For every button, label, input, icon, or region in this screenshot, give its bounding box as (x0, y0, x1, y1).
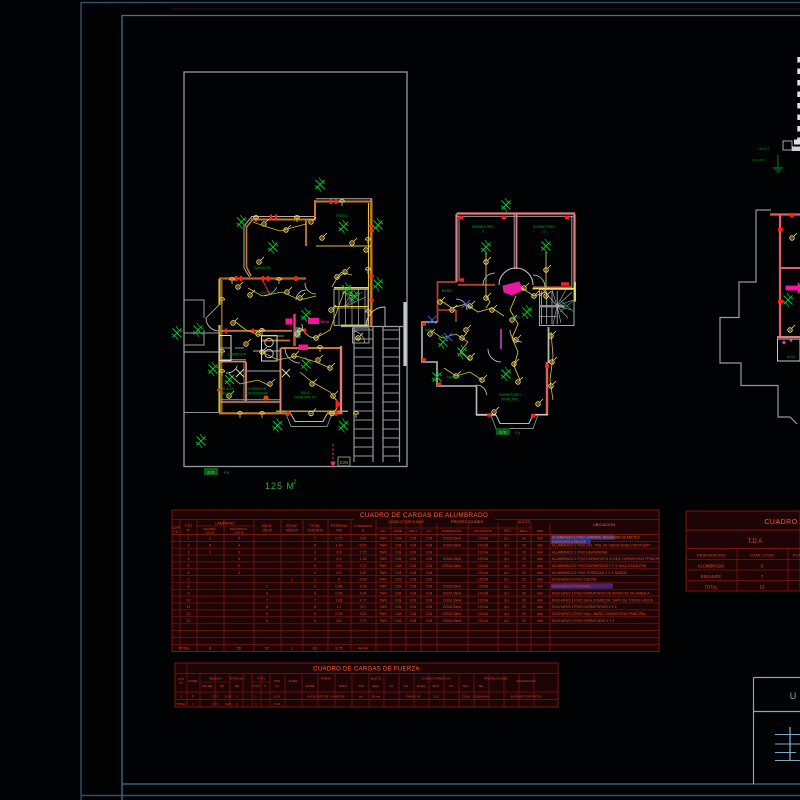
svg-text:2.08: 2.08 (426, 591, 432, 595)
svg-text:2.08: 2.08 (410, 564, 416, 568)
svg-text:DIF.: DIF. (479, 684, 484, 688)
svg-text:baño: baño (425, 328, 433, 332)
svg-text:5.0: 5.0 (361, 605, 366, 609)
svg-text:TWN: TWN (379, 543, 387, 547)
svg-text:1X10A: 1X10A (478, 598, 489, 602)
svg-text:2.08: 2.08 (395, 550, 401, 554)
svg-text:2.08: 2.08 (410, 557, 416, 561)
svg-text:1X10A: 1X10A (478, 550, 489, 554)
svg-text:SECC.: SECC. (519, 529, 528, 533)
svg-text:DIFERENCIAL: DIFERENCIAL (442, 529, 462, 533)
svg-text:LAMPARAS: LAMPARAS (215, 522, 235, 526)
svg-text:ENCHUFES 1 PISO SALA COMEDOR,: ENCHUFES 1 PISO SALA COMEDOR, SAPO DE TO… (552, 598, 654, 602)
svg-text:2.08: 2.08 (410, 543, 416, 547)
svg-text:TRAMO: TRAMO (321, 677, 332, 681)
svg-text:1X10A: 1X10A (478, 578, 489, 582)
svg-text:3: 3 (482, 230, 484, 234)
svg-text:5.18: 5.18 (225, 695, 231, 699)
svg-text:4.77: 4.77 (360, 598, 367, 602)
svg-text:tp.r: tp.r (505, 578, 511, 582)
svg-text:2X32A 30mA: 2X32A 30mA (443, 612, 462, 616)
svg-text:T A.: T A. (173, 530, 179, 534)
svg-text:m/m: m/m (537, 550, 544, 554)
svg-text:1X10A: 1X10A (478, 605, 489, 609)
svg-text:ASL: ASL (404, 684, 409, 688)
svg-text:2.08: 2.08 (426, 578, 432, 582)
svg-text:20: 20 (522, 571, 526, 575)
svg-text:1.06: 1.06 (336, 598, 343, 602)
svg-text:UBICACION: UBICACION (593, 522, 615, 527)
svg-text:2.04: 2.04 (360, 591, 367, 595)
svg-text:m/m: m/m (537, 612, 544, 616)
svg-text:P.A.: P.A. (515, 431, 521, 435)
svg-text:SALA DE: SALA DE (220, 387, 236, 391)
svg-text:ASL: ASL (380, 529, 386, 533)
svg-text:1.10: 1.10 (336, 543, 343, 547)
svg-text:NEUT.: NEUT. (432, 684, 440, 688)
svg-text:DESDE: DESDE (306, 684, 315, 688)
svg-text:m/m: m/m (537, 571, 544, 575)
svg-text:2.08: 2.08 (410, 550, 416, 554)
svg-text:DISYUNTOR: DISYUNTOR (474, 529, 492, 533)
svg-text:2.08: 2.08 (410, 605, 416, 609)
svg-text:DUCTO: DUCTO (518, 520, 531, 524)
svg-text:3: 3 (238, 550, 240, 554)
svg-text:2.08: 2.08 (410, 612, 416, 616)
svg-text:20: 20 (522, 537, 526, 541)
svg-text:3: 3 (314, 550, 316, 554)
svg-text:BAÑO: BAÑO (442, 288, 452, 293)
svg-text:3: 3 (238, 557, 240, 561)
svg-text:LAVADO: LAVADO (220, 392, 234, 396)
svg-text:3: 3 (314, 591, 316, 595)
svg-text:1X10A: 1X10A (478, 612, 489, 616)
svg-text:ESTAR: ESTAR (260, 290, 273, 295)
svg-text:5000 W: 5000 W (286, 529, 298, 533)
svg-text:2X32A 30mA: 2X32A 30mA (443, 543, 462, 547)
svg-text:2.08: 2.08 (395, 591, 401, 595)
svg-text:CANT. CTOS: CANT. CTOS (750, 553, 774, 558)
svg-text:4: 4 (238, 543, 240, 547)
svg-text:ENCHUFES 2 PISO DORMITORIOS 2: ENCHUFES 2 PISO DORMITORIOS 2 Y 3 (552, 605, 617, 609)
svg-text:tp.r: tp.r (505, 537, 511, 541)
svg-text:2X25A 30mA: 2X25A 30mA (473, 695, 488, 699)
svg-text:TWVN 2.08: TWVN 2.08 (406, 695, 421, 699)
svg-text:tp.r: tp.r (505, 543, 511, 547)
svg-text:2.08: 2.08 (395, 619, 401, 623)
svg-text:ENCHUFES 1 PISO COCINA: ENCHUFES 1 PISO COCINA (552, 578, 597, 582)
svg-text:ALUMBRADO 2 PISO TERRAZAS 2 Y: ALUMBRADO 2 PISO TERRAZAS 2 Y 3, BAÑOS (552, 570, 628, 575)
svg-text:ALUMBRADO: ALUMBRADO (698, 564, 725, 569)
svg-text:FASES: FASES (289, 679, 298, 683)
svg-text:ENCHUFES 2 PISO DORMITORIO 2 Y: ENCHUFES 2 PISO DORMITORIO 2 Y 3 (552, 619, 614, 623)
svg-text:2X32A 30mA: 2X32A 30mA (443, 585, 462, 589)
svg-text:8: 8 (266, 605, 268, 609)
svg-text:1X10A: 1X10A (478, 591, 489, 595)
svg-text:CONDUCTORES AWG: CONDUCTORES AWG (388, 520, 424, 524)
svg-text:TWN: TWN (379, 605, 387, 609)
svg-text:DUCTO: DUCTO (371, 677, 382, 681)
svg-text:2.73: 2.73 (360, 619, 367, 623)
svg-text:2X32A 30mA: 2X32A 30mA (443, 591, 462, 595)
svg-text:m/m: m/m (537, 529, 544, 533)
svg-text:m/m: m/m (537, 578, 544, 582)
svg-text:2.08: 2.08 (426, 543, 432, 547)
svg-text:2.08: 2.08 (395, 612, 401, 616)
svg-text:7: 7 (314, 598, 316, 602)
svg-text:KV: KV (275, 684, 279, 688)
svg-text:2.27: 2.27 (360, 564, 367, 568)
svg-text:13: 13 (760, 585, 765, 590)
svg-text:20: 20 (522, 543, 526, 547)
svg-text:BAÑO 2: BAÑO 2 (447, 375, 460, 380)
svg-text:20: 20 (522, 598, 526, 602)
svg-text:B+TH+TLRT. DE Y A MOTOR: B+TH+TLRT. DE Y A MOTOR (308, 695, 345, 699)
svg-text:5.02: 5.02 (360, 543, 367, 547)
svg-text:61: 61 (313, 647, 317, 651)
svg-text:DORMITORIO: DORMITORIO (499, 393, 521, 397)
svg-text:0.16: 0.16 (274, 702, 280, 706)
svg-text:2.08: 2.08 (395, 578, 401, 582)
svg-text:2.08: 2.08 (426, 571, 432, 575)
svg-text:20: 20 (522, 578, 526, 582)
svg-text:2.04: 2.04 (360, 585, 367, 589)
svg-text:FAMILIAR TV: FAMILIAR TV (294, 396, 317, 400)
svg-text:5: 5 (314, 564, 316, 568)
svg-text:1X10A: 1X10A (478, 537, 489, 541)
svg-text:13: 13 (187, 619, 191, 623)
svg-text:CTOS: CTOS (252, 684, 259, 688)
svg-text:SALIDA MOTOR PORTON: SALIDA MOTOR PORTON (510, 695, 541, 699)
svg-text:2.08: 2.08 (410, 598, 416, 602)
svg-text:T.D.A: T.D.A (748, 539, 763, 545)
svg-text:ENCHUFES 2 PISO HALL: ENCHUFES 2 PISO HALL (552, 585, 592, 589)
svg-text:I=I I-I I I=I: I=I I-I I I=I (752, 158, 765, 162)
svg-text:CUADRO: CUADRO (764, 519, 797, 526)
svg-text:tp.r: tp.r (505, 564, 511, 568)
svg-text:TENSION: TENSION (209, 677, 222, 681)
svg-text:tp.r: tp.r (505, 598, 511, 602)
svg-text:125 M: 125 M (265, 481, 295, 491)
svg-text:150 W: 150 W (262, 529, 273, 533)
svg-text:2: 2 (543, 230, 545, 234)
svg-text:3.41: 3.41 (360, 612, 367, 616)
svg-text:COMEDOR: COMEDOR (228, 353, 247, 357)
svg-text:m/m: m/m (537, 557, 544, 561)
svg-text:2X32A 30mA: 2X32A 30mA (443, 605, 462, 609)
svg-text:3.73: 3.73 (212, 702, 218, 706)
svg-text:KW: KW (336, 529, 342, 533)
svg-text:POR: POR (274, 679, 280, 683)
svg-text:220-380: 220-380 (202, 684, 213, 688)
svg-text:m/m: m/m (537, 591, 544, 595)
svg-text:2: 2 (188, 543, 190, 547)
svg-text:HALL: HALL (513, 315, 522, 319)
svg-text:CUADRO DE CARGAS DE FUERZA: CUADRO DE CARGAS DE FUERZA (313, 667, 419, 673)
svg-text:FASES: FASES (417, 684, 426, 688)
svg-text:DORMITORIO: DORMITORIO (472, 225, 494, 229)
svg-text:mm: mm (389, 685, 393, 688)
svg-text:BAJA: BAJA (321, 320, 330, 324)
svg-text:tp.r: tp.r (505, 619, 511, 623)
svg-text:TWN: TWN (379, 564, 387, 568)
svg-text:TWN: TWN (379, 591, 387, 595)
svg-text:100 W: 100 W (206, 531, 215, 535)
svg-text:2.08: 2.08 (395, 571, 401, 575)
svg-text:PROTECCIONES: PROTECCIONES (451, 519, 483, 524)
svg-text:3: 3 (314, 585, 316, 589)
svg-text:7: 7 (314, 537, 316, 541)
svg-text:20: 20 (522, 550, 526, 554)
svg-text:20: 20 (522, 612, 526, 616)
svg-text:m/m: m/m (537, 605, 544, 609)
svg-text:CENTROS: CENTROS (307, 529, 323, 533)
svg-text:T.A: T.A (427, 529, 431, 533)
svg-text:8: 8 (209, 647, 211, 651)
svg-text:ALUMBRADO 1 PISO SAL. PAS. DE: ALUMBRADO 1 PISO SAL. PAS. DE VERGLASSA,… (552, 543, 650, 547)
svg-text:2.08: 2.08 (395, 605, 401, 609)
svg-text:11: 11 (187, 605, 191, 609)
svg-text:PROTECCIONES: PROTECCIONES (484, 677, 507, 681)
svg-text:12: 12 (187, 612, 191, 616)
svg-text:2: 2 (266, 585, 268, 589)
svg-text:TWN: TWN (379, 619, 387, 623)
svg-text:10: 10 (187, 598, 191, 602)
svg-text:m/m: m/m (537, 564, 544, 568)
svg-text:0.9: 0.9 (337, 550, 342, 554)
svg-text:TWN: TWN (379, 571, 387, 575)
svg-text:2.08: 2.08 (410, 591, 416, 595)
svg-text:2X32A 30mA: 2X32A 30mA (443, 619, 462, 623)
svg-text:SECC.: SECC. (372, 684, 380, 688)
svg-text:1X10A: 1X10A (478, 543, 489, 547)
svg-text:TIPO: TIPO (503, 529, 511, 533)
svg-text:0.16: 0.16 (274, 695, 280, 699)
svg-text:2X16A: 2X16A (462, 695, 471, 699)
svg-text:4: 4 (314, 571, 316, 575)
svg-text:2.08: 2.08 (426, 605, 432, 609)
svg-text:m/m: m/m (537, 598, 544, 602)
svg-text:3: 3 (314, 557, 316, 561)
svg-text:20: 20 (522, 591, 526, 595)
svg-text:2.08: 2.08 (395, 537, 401, 541)
svg-text:POTENCIA: POTENCIA (331, 524, 348, 528)
svg-text:tp.r: tp.r (505, 557, 511, 561)
svg-text:1X10A: 1X10A (478, 619, 489, 623)
svg-text:2.08: 2.08 (426, 537, 432, 541)
svg-text:2.08: 2.08 (395, 564, 401, 568)
svg-text:7: 7 (188, 578, 190, 582)
svg-text:1: 1 (291, 647, 293, 651)
svg-text:1X10A: 1X10A (478, 571, 489, 575)
svg-text:2: 2 (209, 550, 211, 554)
svg-text:20: 20 (522, 557, 526, 561)
svg-text:N: N (264, 684, 266, 688)
svg-text:3.73: 3.73 (212, 695, 218, 699)
svg-text:2: 2 (294, 480, 297, 486)
svg-text:5.18: 5.18 (225, 702, 231, 706)
svg-text:tp.r: tp.r (505, 612, 511, 616)
svg-text:5: 5 (188, 564, 190, 568)
svg-text:TWN: TWN (379, 550, 387, 554)
svg-text:20: 20 (522, 585, 526, 589)
svg-text:1.36: 1.36 (360, 557, 367, 561)
svg-text:55 mm: 55 mm (372, 695, 381, 699)
svg-text:9.09: 9.09 (360, 578, 367, 582)
svg-text:2X32A 30mA: 2X32A 30mA (443, 564, 462, 568)
svg-text:2.08: 2.08 (426, 564, 432, 568)
svg-text:6: 6 (188, 571, 190, 575)
svg-text:I I=I I I I: I I=I I I I (758, 147, 769, 151)
svg-text:3.41: 3.41 (360, 537, 367, 541)
svg-text:E2N: E2N (340, 460, 348, 465)
svg-text:3: 3 (188, 550, 190, 554)
svg-text:0.48: 0.48 (336, 585, 343, 589)
svg-text:TIPO: TIPO (358, 684, 364, 688)
svg-text:1: 1 (180, 695, 182, 699)
svg-text:m/m: m/m (537, 543, 544, 547)
svg-text:ENCH.: ENCH. (262, 524, 273, 528)
svg-text:9.75: 9.75 (335, 647, 342, 651)
svg-text:100 W: 100 W (235, 531, 244, 535)
svg-text:PRINCIPAL: PRINCIPAL (501, 398, 519, 402)
svg-text:55: 55 (237, 647, 241, 651)
svg-text:4: 4 (238, 571, 240, 575)
svg-text:2.08: 2.08 (426, 612, 432, 616)
svg-text:1: 1 (314, 578, 316, 582)
svg-text:PATIO: PATIO (336, 213, 347, 218)
svg-text:2.08: 2.08 (410, 619, 416, 623)
svg-text:2.08: 2.08 (410, 585, 416, 589)
svg-text:ALUMBRADO 2 PISO DORMITOR B CL: ALUMBRADO 2 PISO DORMITOR B CLOES, DORMI… (552, 557, 660, 561)
svg-text:0.75: 0.75 (336, 612, 343, 616)
svg-text:0.4: 0.4 (337, 571, 342, 575)
svg-text:20: 20 (522, 605, 526, 609)
svg-text:DESIGNACION: DESIGNACION (697, 553, 725, 558)
svg-text:N°: N° (187, 529, 191, 533)
svg-text:2.08: 2.08 (410, 578, 416, 582)
svg-text:1X10A: 1X10A (478, 585, 489, 589)
svg-text:CONDUCTORES mm²: CONDUCTORES mm² (421, 677, 450, 681)
svg-text:E/S: E/S (207, 470, 214, 475)
svg-text:CTO: CTO (185, 524, 192, 528)
svg-text:1: 1 (188, 537, 190, 541)
svg-text:0.3: 0.3 (337, 557, 342, 561)
svg-text:2.72: 2.72 (360, 550, 367, 554)
svg-text:20: 20 (522, 564, 526, 568)
svg-text:5: 5 (238, 564, 240, 568)
svg-text:1.82: 1.82 (360, 571, 367, 575)
svg-text:5: 5 (266, 612, 268, 616)
svg-text:U: U (790, 691, 797, 701)
svg-text:ESTUF.: ESTUF. (286, 524, 298, 528)
svg-text:TOTAL: TOTAL (176, 702, 186, 706)
svg-text:FASE: FASE (394, 529, 402, 533)
svg-text:CORRIENTE: CORRIENTE (354, 524, 372, 528)
svg-text:6: 6 (314, 543, 316, 547)
svg-text:tp.r: tp.r (505, 585, 511, 589)
svg-text:1X10A: 1X10A (478, 557, 489, 561)
svg-text:I=I I=I: I=I I=I (787, 355, 795, 359)
svg-text:2X32A 30mA: 2X32A 30mA (443, 598, 462, 602)
svg-text:2.08: 2.08 (426, 598, 432, 602)
svg-text:TWN: TWN (379, 585, 387, 589)
svg-text:1.1: 1.1 (337, 605, 342, 609)
svg-text:COMEDOR: COMEDOR (248, 387, 267, 391)
svg-text:tp.r: tp.r (505, 591, 511, 595)
svg-text:TWN: TWN (379, 557, 387, 561)
svg-text:44.34: 44.34 (358, 647, 368, 651)
svg-text:57: 57 (265, 647, 269, 651)
svg-text:20: 20 (522, 619, 526, 623)
svg-text:POTENCIA in: POTENCIA in (229, 678, 245, 681)
svg-text:7: 7 (266, 598, 268, 602)
svg-text:0.75: 0.75 (336, 537, 343, 541)
svg-text:1: 1 (291, 578, 293, 582)
svg-text:TOTAL: TOTAL (704, 585, 718, 590)
svg-text:8: 8 (188, 585, 190, 589)
svg-text:8: 8 (209, 543, 211, 547)
svg-text:5: 5 (314, 612, 316, 616)
svg-text:4: 4 (266, 619, 268, 623)
svg-text:KW: KW (235, 684, 240, 688)
svg-text:TWN: TWN (379, 578, 387, 582)
svg-text:4: 4 (188, 557, 190, 561)
svg-text:1X10A: 1X10A (478, 564, 489, 568)
svg-text:m/m: m/m (537, 619, 544, 623)
svg-text:0.6: 0.6 (337, 619, 342, 623)
svg-text:2.08: 2.08 (410, 537, 416, 541)
svg-text:1: 1 (209, 537, 211, 541)
svg-text:2.08: 2.08 (426, 557, 432, 561)
svg-text:2.08: 2.08 (395, 585, 401, 589)
svg-text:2.08: 2.08 (410, 571, 416, 575)
svg-text:DE TERRAZA: DE TERRAZA (246, 392, 268, 396)
svg-text:tp.r: tp.r (505, 605, 511, 609)
svg-text:5: 5 (238, 537, 240, 541)
svg-text:N°: N° (179, 681, 182, 685)
svg-text:tp.r: tp.r (505, 571, 511, 575)
svg-text:2.08: 2.08 (433, 695, 439, 699)
svg-text:2X32A 30mA: 2X32A 30mA (443, 557, 462, 561)
svg-text:TWN: TWN (379, 612, 387, 616)
svg-text:FASES: FASES (189, 679, 198, 683)
svg-text:2.08: 2.08 (426, 585, 432, 589)
svg-text:HASTA: HASTA (339, 684, 348, 688)
svg-text:0.5: 0.5 (337, 564, 342, 568)
svg-text:DISY.: DISY. (463, 684, 470, 688)
svg-text:tp.r: tp.r (505, 550, 511, 554)
svg-text:DORMITORIO: DORMITORIO (533, 225, 555, 229)
svg-text:m/m: m/m (537, 585, 544, 589)
svg-text:2.08: 2.08 (395, 557, 401, 561)
svg-text:TOTAL: TOTAL (257, 677, 266, 681)
svg-text:TWN: TWN (379, 598, 387, 602)
svg-text:TOTAL: TOTAL (178, 647, 189, 651)
svg-text:ALUMBRADO 2 PISO DORMITORIO 2: ALUMBRADO 2 PISO DORMITORIO 2 Y 3, HALL … (552, 564, 647, 568)
svg-text:POT: POT (793, 553, 800, 558)
svg-text:3: 3 (266, 591, 268, 595)
svg-text:ALUMBRADO 1 PISO LAVANDERIA: ALUMBRADO 1 PISO LAVANDERIA (552, 550, 608, 554)
svg-text:ENCHUFES 2 PISO HALL, BAÑO, DO: ENCHUFES 2 PISO HALL, BAÑO, DORMITORIO P… (552, 611, 646, 616)
svg-text:NEUT: NEUT (409, 529, 417, 533)
svg-text:0.45: 0.45 (336, 591, 343, 595)
svg-text:tp.r: tp.r (359, 695, 363, 699)
svg-text:8: 8 (314, 605, 316, 609)
svg-text:TLP: TLP (449, 684, 454, 688)
svg-text:ENCHUFE: ENCHUFE (701, 574, 721, 579)
svg-text:2X32A 30mA: 2X32A 30mA (443, 537, 462, 541)
